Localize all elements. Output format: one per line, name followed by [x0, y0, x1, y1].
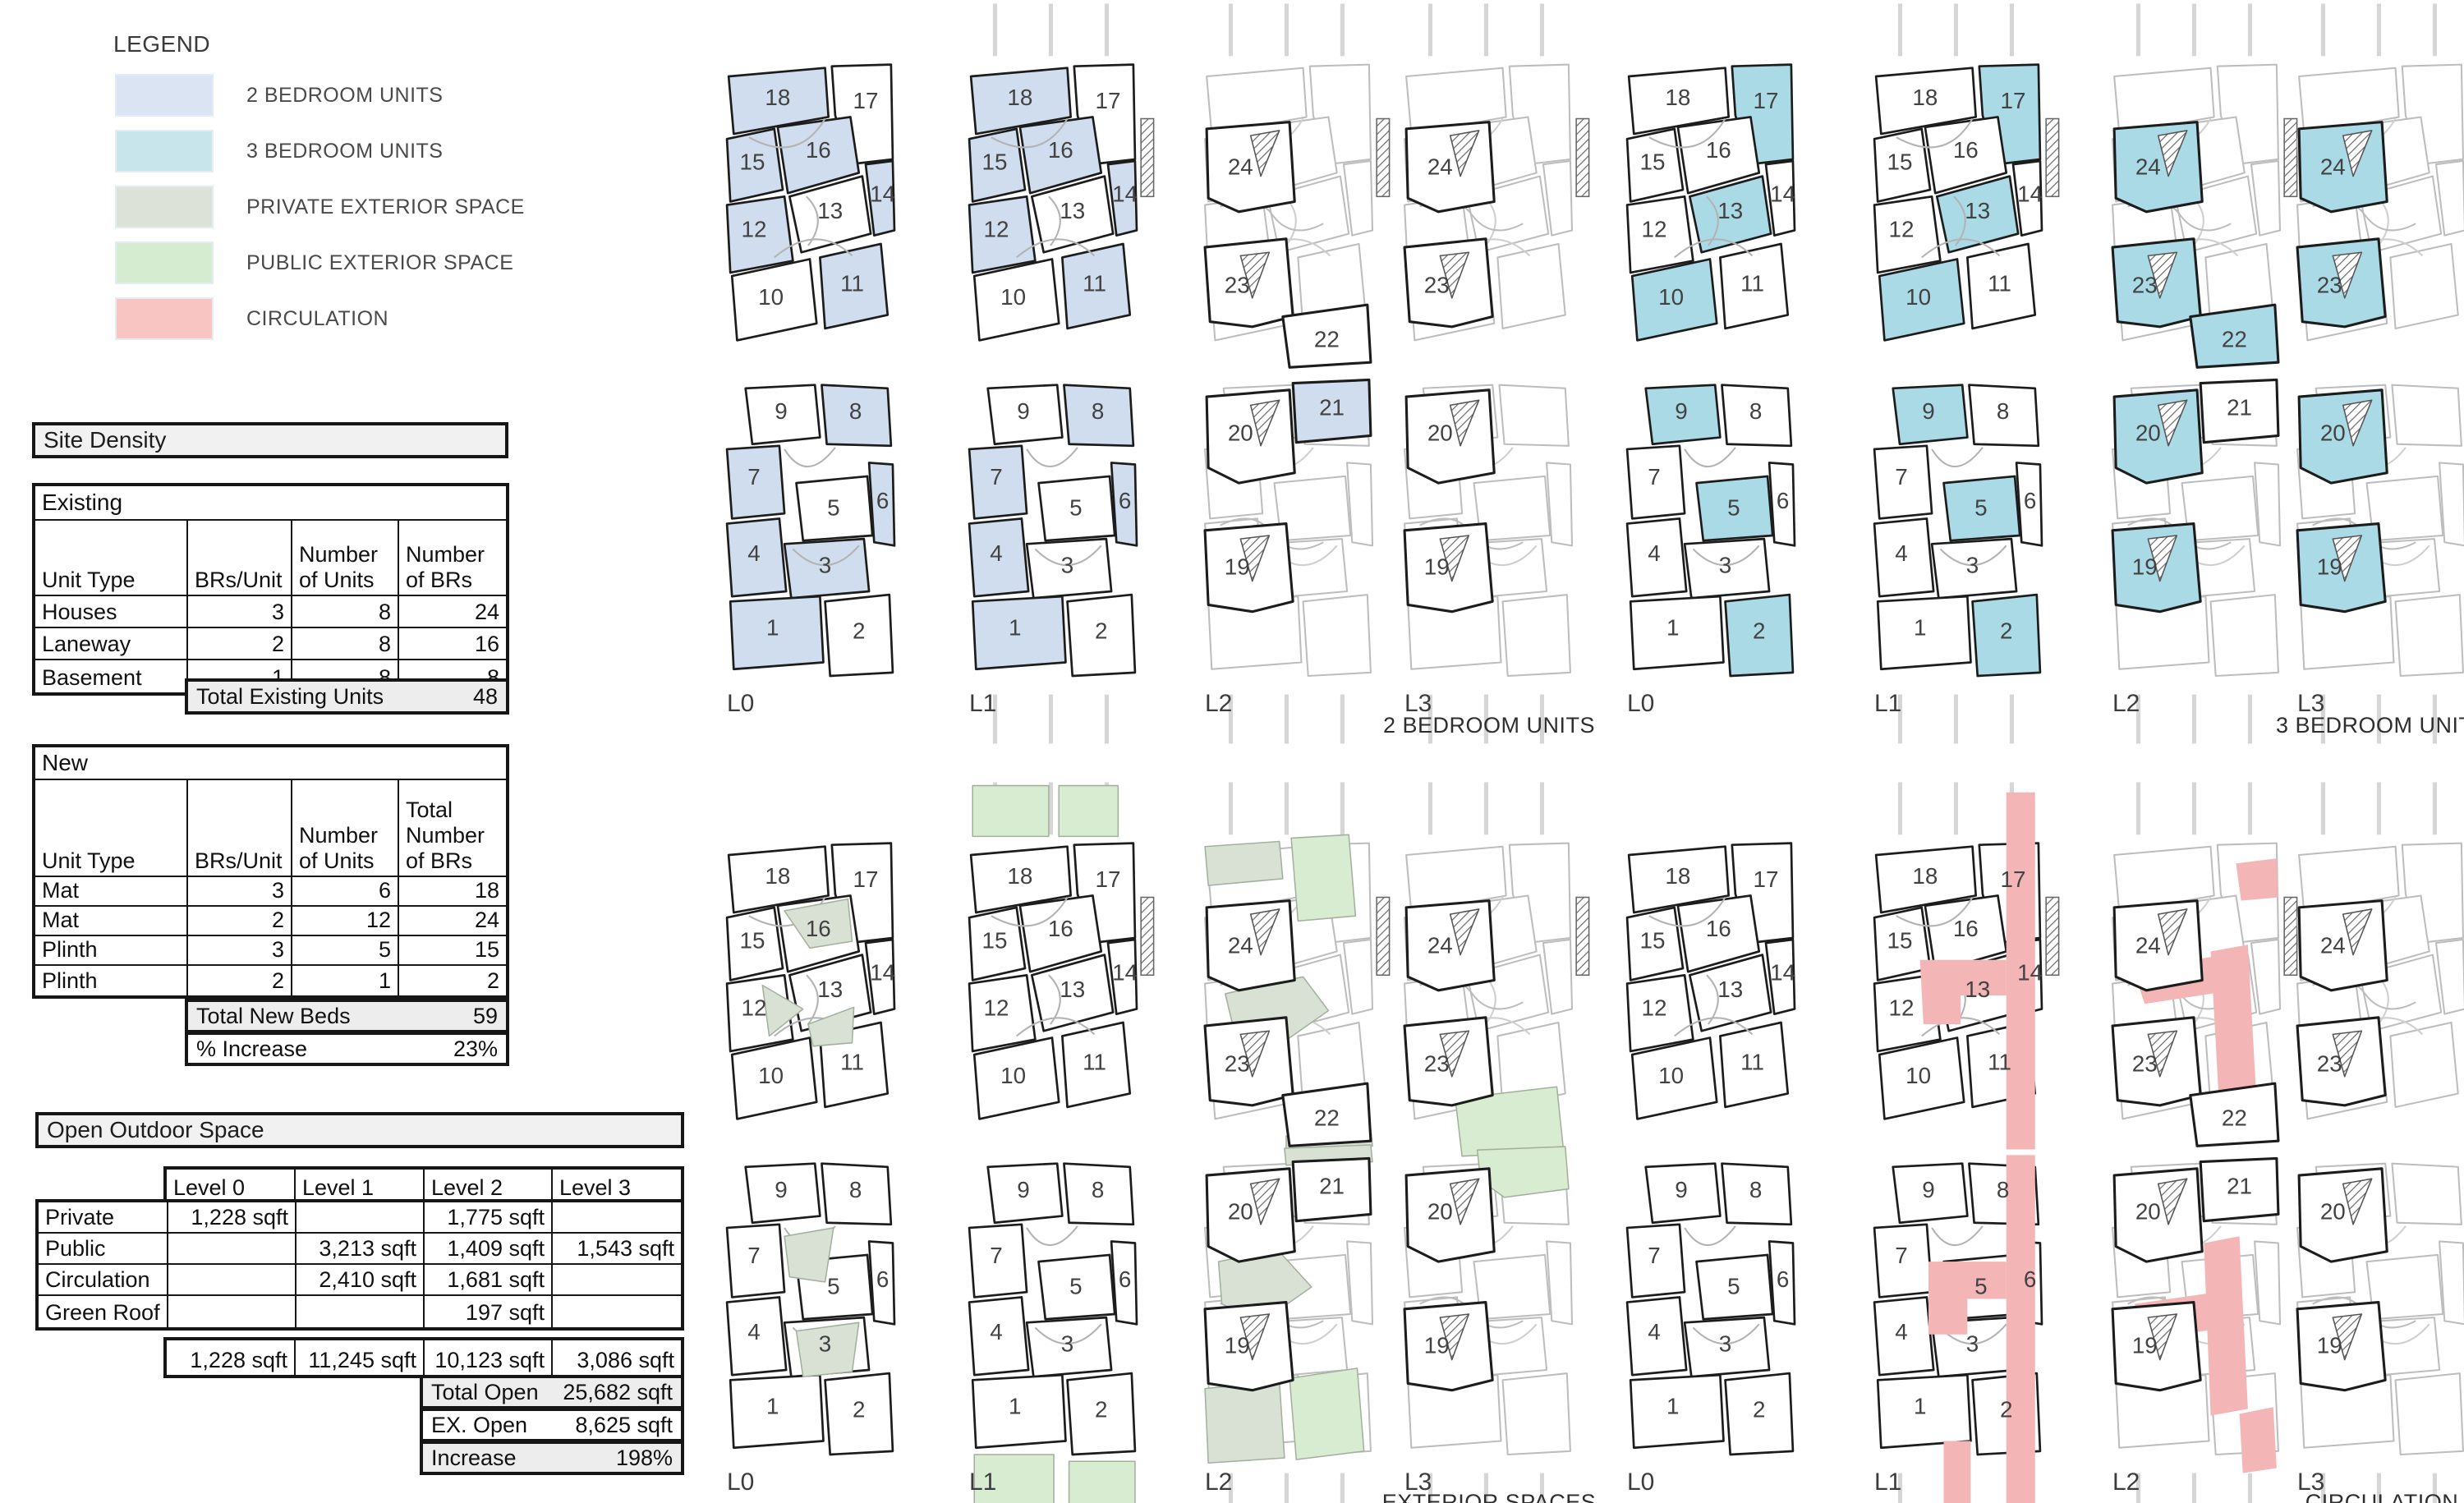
context-line	[1285, 782, 1289, 834]
new-col-header: Total Number of BRs	[399, 780, 506, 877]
room-number: 1	[1666, 1394, 1679, 1419]
new-cell: 12	[292, 907, 399, 936]
context-room	[1497, 244, 1565, 329]
context-line	[1898, 3, 1902, 56]
room-number: 9	[775, 1177, 787, 1202]
ex-open-label: EX. Open	[431, 1413, 527, 1438]
room-number: 9	[1922, 1177, 1934, 1202]
open-row-label: Public	[39, 1234, 168, 1265]
context-line	[1898, 782, 1902, 834]
context-line	[1340, 782, 1345, 834]
room-number: 12	[984, 217, 1009, 242]
plan-group-caption: CIRCULATION	[2250, 1490, 2464, 1503]
room-number: 20	[1427, 421, 1453, 446]
room-number: 20	[2320, 421, 2346, 446]
room-number: 6	[1777, 1266, 1789, 1292]
room-number: 11	[1988, 271, 2011, 296]
context-room	[1547, 1241, 1572, 1324]
room-number: 8	[1092, 1177, 1104, 1202]
room-number: 1	[1009, 615, 1021, 641]
open-cell: 197 sqft	[425, 1296, 553, 1327]
room-number: 3	[1966, 1331, 1979, 1356]
context-line	[1484, 782, 1488, 834]
context-line	[1954, 3, 1958, 56]
room-number: 10	[1658, 1063, 1684, 1088]
circ-exterior-patch	[2236, 858, 2278, 901]
room-number: 20	[1228, 1199, 1253, 1225]
context-line	[2377, 3, 2381, 56]
room-number: 15	[1887, 927, 1912, 953]
plan-upper-block: 181715161314121011	[1625, 64, 1795, 370]
room-number: 6	[1777, 488, 1789, 513]
plan-lower-block: 2019	[2296, 1161, 2464, 1467]
open-total-cell: 3,086 sqft	[553, 1340, 681, 1375]
new-cell: 3	[188, 877, 292, 907]
pub-exterior-patch	[1289, 1368, 1364, 1459]
room-number: 16	[1706, 916, 1731, 941]
room-number: 8	[1092, 398, 1104, 424]
legend-swatch-circulation	[115, 297, 214, 340]
open-total-cell: 1,228 sqft	[167, 1340, 296, 1375]
room-number: 6	[1119, 488, 1131, 513]
context-line	[1105, 3, 1109, 56]
context-line	[2192, 695, 2196, 744]
room-number: 11	[1083, 271, 1106, 296]
room-number: 8	[1749, 398, 1762, 424]
legend-swatch-private-exterior	[115, 186, 214, 228]
room-number: 18	[1665, 85, 1690, 110]
open-cell: 1,543 sqft	[553, 1234, 681, 1265]
increase-label: Increase	[431, 1446, 517, 1471]
open-cell: 1,409 sqft	[425, 1234, 553, 1265]
room-number: 5	[1727, 1273, 1740, 1298]
room-number: 3	[819, 552, 831, 577]
increase-value: 198%	[616, 1446, 673, 1471]
new-col-header: Unit Type	[35, 780, 188, 877]
level-label: L1	[969, 1469, 996, 1496]
plan-lower-block: 202119	[2111, 383, 2280, 688]
level-label: L2	[2112, 1469, 2140, 1496]
site-density-header: Site Density	[32, 422, 508, 458]
room-number: 23	[1225, 273, 1250, 298]
context-line	[1540, 3, 1544, 56]
room-number: 10	[1905, 284, 1931, 310]
room-number: 17	[2001, 88, 2026, 113]
room-number: 7	[1648, 464, 1660, 490]
interior-arc	[1027, 448, 1078, 467]
context-line	[2321, 782, 2325, 834]
room-number: 4	[1895, 1319, 1907, 1344]
room-number: 10	[758, 1063, 784, 1088]
room-number: 19	[2132, 554, 2158, 579]
plan-lower-block: 202119	[1203, 1161, 1372, 1467]
context-room	[1303, 595, 1371, 676]
room-number: 1	[1009, 1394, 1021, 1419]
context-room	[1347, 1241, 1372, 1324]
new-cell: 18	[399, 877, 506, 907]
ex-open-box: EX. Open 8,625 sqft	[420, 1408, 684, 1442]
room-number: 18	[765, 863, 790, 889]
room-number: 6	[2024, 1266, 2036, 1292]
room-number: 2	[1753, 618, 1765, 644]
level-col-header: Level 0	[167, 1170, 296, 1202]
existing-cell: 2	[188, 628, 292, 660]
circ-exterior-patch	[2007, 1155, 2035, 1503]
room-number: 1	[766, 1394, 779, 1419]
room-number: 5	[1727, 494, 1740, 520]
plan-upper-block: 181715161314121011	[1873, 64, 2042, 370]
plan-lower-block: 987564321	[1625, 383, 1795, 688]
context-room	[1503, 1373, 1570, 1455]
room-number: 15	[981, 149, 1007, 174]
room-number: 14	[2017, 181, 2043, 206]
room-number: 1	[1914, 1394, 1926, 1419]
room-number: 12	[1642, 217, 1667, 242]
room-number: 12	[742, 995, 767, 1021]
room-number: 16	[1048, 916, 1073, 941]
room-number: 13	[1060, 977, 1085, 1002]
open-cell: 1,228 sqft	[168, 1202, 297, 1234]
legend-item: PRIVATE EXTERIOR SPACE	[115, 184, 608, 230]
room-number: 18	[1007, 85, 1032, 110]
room-number: 7	[1648, 1243, 1660, 1268]
plan-upper-block: 2423	[2296, 64, 2464, 370]
room-number: 19	[1225, 554, 1250, 579]
plan-lower-block: 987564321	[968, 383, 1137, 688]
room-number: 11	[1740, 271, 1764, 296]
room-number: 4	[990, 1319, 1002, 1344]
room-number: 13	[1965, 977, 1990, 1002]
context-room	[2390, 1023, 2457, 1107]
room-number: 1	[766, 615, 779, 641]
room-number: 5	[1069, 1273, 1082, 1298]
pub-exterior-patch	[1059, 786, 1118, 837]
new-cell: Mat	[35, 907, 188, 936]
room-number: 22	[2222, 1105, 2247, 1131]
room-number: 15	[1887, 149, 1912, 174]
legend-item: 3 BEDROOM UNITS	[115, 128, 608, 174]
open-total-cell: 10,123 sqft	[425, 1340, 553, 1375]
plan-upper-block: 181715161314121011	[1625, 843, 1795, 1148]
plan-lower-block: 987564321	[725, 383, 894, 688]
context-room	[1547, 462, 1572, 545]
context-line	[1285, 3, 1289, 56]
stair-hatch	[2046, 119, 2058, 197]
open-cell	[297, 1202, 425, 1234]
room-number: 4	[990, 540, 1002, 566]
existing-cell: Basement	[35, 660, 188, 692]
room-number: 7	[1895, 1243, 1907, 1268]
context-room	[2396, 595, 2463, 676]
open-cell: 1,681 sqft	[425, 1265, 553, 1296]
open-cell: 1,775 sqft	[425, 1202, 553, 1234]
room-number: 14	[870, 181, 895, 206]
plan-upper-block: 181715161314121011	[725, 843, 894, 1148]
room-number: 20	[1228, 421, 1253, 446]
room-number: 3	[1061, 1331, 1073, 1356]
level-label: L0	[1627, 690, 1654, 718]
legend-item: 2 BEDROOM UNITS	[115, 72, 608, 118]
plan-upper-block: 242322	[1203, 843, 1372, 1148]
context-line	[2377, 782, 2381, 834]
room-number: 16	[1048, 137, 1073, 163]
context-room	[2255, 462, 2280, 545]
new-table: New Unit Type BRs/Unit Number of Units T…	[32, 744, 509, 999]
new-cell: 1	[292, 966, 399, 995]
plan-lower-block: 202119	[2111, 1161, 2280, 1467]
room-number: 5	[1974, 1273, 1987, 1298]
plan-upper-block: 181715161314121011	[725, 64, 894, 370]
stair-hatch	[1377, 119, 1389, 197]
context-line	[1340, 695, 1345, 744]
context-line	[2433, 3, 2437, 56]
context-line	[2192, 3, 2196, 56]
context-line	[2192, 782, 2196, 834]
room-number: 6	[876, 1266, 889, 1292]
level-label: L1	[1874, 690, 1901, 718]
existing-cell: 16	[399, 628, 506, 660]
room-number: 8	[1997, 1177, 2009, 1202]
stair-hatch	[1576, 119, 1588, 197]
interior-arc	[1932, 1226, 1983, 1245]
ex-open-value: 8,625 sqft	[575, 1413, 673, 1438]
level-label: L1	[969, 690, 996, 718]
new-total-beds-label: Total New Beds	[196, 1004, 351, 1029]
legend-label: PRIVATE EXTERIOR SPACE	[246, 195, 525, 219]
context-room	[1503, 595, 1570, 676]
room-number: 19	[2317, 554, 2342, 579]
context-line	[1285, 695, 1289, 744]
plan-upper-block: 181715161314121011	[968, 843, 1137, 1148]
room-number: 4	[747, 1319, 760, 1344]
new-col-header: BRs/Unit	[188, 780, 292, 877]
stair-hatch	[2046, 898, 2058, 976]
context-line	[1049, 695, 1053, 744]
room-number: 17	[1754, 88, 1779, 113]
context-line	[2248, 3, 2252, 56]
room-number: 13	[1965, 198, 1990, 223]
context-line	[1049, 3, 1053, 56]
room-number: 14	[1112, 181, 1138, 206]
context-line	[1428, 3, 1432, 56]
open-total-cell: 11,245 sqft	[296, 1340, 425, 1375]
room-number: 19	[1424, 554, 1450, 579]
pub-exterior-patch	[972, 786, 1049, 837]
context-line	[2136, 782, 2140, 834]
context-room	[2439, 462, 2464, 545]
room-number: 24	[1427, 154, 1453, 180]
open-cell	[168, 1296, 297, 1327]
room-number: 16	[1953, 916, 1979, 941]
room-number: 17	[853, 88, 879, 113]
room-number: 24	[2135, 154, 2161, 180]
room-number: 8	[1749, 1177, 1762, 1202]
room-number: 15	[739, 927, 765, 953]
plan-lower-block: 987564321	[968, 1161, 1137, 1467]
open-cell	[297, 1296, 425, 1327]
room-number: 24	[1228, 933, 1253, 958]
open-cell: 2,410 sqft	[297, 1265, 425, 1296]
new-cell: Plinth	[35, 966, 188, 995]
room-number: 18	[1007, 863, 1032, 889]
open-cell	[553, 1202, 681, 1234]
plan-upper-block: 181715161314121011	[968, 64, 1137, 370]
new-col-header: Number of Units	[292, 780, 399, 877]
room-number: 24	[2320, 933, 2346, 958]
priv-exterior-patch	[1205, 842, 1283, 886]
room-number: 4	[1648, 1319, 1660, 1344]
room-number: 19	[1225, 1332, 1250, 1358]
room-number: 14	[1770, 959, 1795, 985]
room-number: 2	[2000, 618, 2012, 644]
level-label: L0	[727, 1469, 754, 1496]
existing-col-header: Number of BRs	[399, 521, 506, 596]
room-number: 16	[806, 137, 831, 163]
room-number: 23	[2317, 1051, 2342, 1077]
new-cell: 5	[292, 936, 399, 966]
room-number: 22	[1314, 1105, 1340, 1131]
context-room	[2439, 1241, 2464, 1324]
new-total-beds-value: 59	[473, 1004, 498, 1029]
new-cell: 2	[399, 966, 506, 995]
room-number: 22	[1314, 327, 1340, 352]
level-label: L0	[1627, 1469, 1654, 1496]
room-number: 20	[2135, 421, 2161, 446]
new-cell: Mat	[35, 877, 188, 907]
room-number: 24	[2320, 154, 2346, 180]
sheet-canvas: LEGEND 2 BEDROOM UNITS 3 BEDROOM UNITS P…	[0, 0, 2464, 1503]
plan-lower-block: 2019	[1403, 1161, 1572, 1467]
plan-lower-block: 2019	[1403, 383, 1572, 688]
plan-lower-block: 987564321	[1625, 1161, 1795, 1467]
context-line	[2010, 3, 2014, 56]
new-cell: 24	[399, 907, 506, 936]
context-line	[1105, 695, 1109, 744]
plan-lower-block: 2019	[2296, 383, 2464, 688]
room-number: 3	[1719, 1331, 1731, 1356]
room-number: 23	[1424, 273, 1450, 298]
context-line	[2010, 695, 2014, 744]
room-number: 5	[827, 1273, 839, 1298]
room-number: 24	[1427, 933, 1453, 958]
room-number: 21	[1319, 1174, 1345, 1199]
context-line	[2248, 782, 2252, 834]
total-open-box: Total Open 25,682 sqft	[420, 1375, 684, 1409]
room-number: 15	[1639, 927, 1665, 953]
room-number: 9	[1922, 398, 1934, 424]
room-number: 12	[742, 217, 767, 242]
legend-swatch-public-exterior	[115, 241, 214, 284]
plan-upper-block: 2423	[1403, 64, 1572, 370]
room-number: 14	[870, 959, 895, 985]
total-open-label: Total Open	[431, 1380, 539, 1405]
plan-lower-block: 987564321	[1873, 383, 2042, 688]
room-number: 16	[806, 916, 831, 941]
level-label: L2	[1205, 1469, 1232, 1496]
plan-lower-block: 987564321	[725, 1161, 894, 1467]
room-number: 2	[2000, 1397, 2012, 1423]
context-line	[1229, 3, 1233, 56]
context-line	[1340, 3, 1345, 56]
legend-item: CIRCULATION	[115, 296, 608, 342]
context-line	[2433, 782, 2437, 834]
room-number: 2	[1095, 1397, 1107, 1423]
level-label: L0	[727, 690, 754, 718]
pub-exterior-patch	[1291, 834, 1355, 921]
room-number: 8	[1997, 398, 2009, 424]
room-number: 19	[2317, 1332, 2342, 1358]
room-number: 13	[817, 977, 843, 1002]
pub-exterior-patch	[1069, 1461, 1135, 1503]
total-open-value: 25,682 sqft	[563, 1380, 673, 1405]
circ-exterior-patch	[1944, 1441, 1971, 1503]
open-row-label: Green Roof	[39, 1296, 168, 1327]
room-number: 13	[1717, 977, 1743, 1002]
context-room	[2211, 595, 2278, 676]
open-cell	[168, 1265, 297, 1296]
context-line	[1340, 1473, 1345, 1503]
open-cell	[553, 1265, 681, 1296]
room-number: 20	[2135, 1199, 2161, 1225]
room-number: 24	[1228, 154, 1253, 180]
room-number: 12	[1642, 995, 1667, 1021]
new-increase-label: % Increase	[196, 1036, 307, 1062]
room-number: 14	[2017, 959, 2043, 985]
room-number: 2	[853, 1397, 865, 1423]
room-number: 14	[1112, 959, 1138, 985]
level-col-header: Level 2	[425, 1170, 553, 1202]
room-number: 14	[1770, 181, 1795, 206]
room-number: 17	[2001, 866, 2026, 892]
plan-group-caption: 2 BEDROOM UNITS	[1358, 713, 1620, 738]
context-line	[2321, 3, 2325, 56]
room-number: 16	[1953, 137, 1979, 163]
room-number: 3	[1061, 552, 1073, 577]
new-increase-value: 23%	[453, 1036, 498, 1062]
room-number: 9	[1017, 398, 1029, 424]
plan-upper-block: 2423	[2296, 843, 2464, 1148]
open-cell	[553, 1296, 681, 1327]
room-number: 1	[1666, 615, 1679, 641]
stair-hatch	[1141, 119, 1153, 197]
existing-cell: Laneway	[35, 628, 188, 660]
plan-group-caption: EXTERIOR SPACES	[1358, 1490, 1620, 1503]
room-number: 4	[747, 540, 760, 566]
legend-swatch-3br	[115, 130, 214, 172]
existing-col-header: Unit Type	[35, 521, 188, 596]
stair-hatch	[1576, 898, 1588, 976]
plan-lower-block: 987564321	[1873, 1161, 2042, 1467]
room-number: 18	[1912, 85, 1938, 110]
legend-item: PUBLIC EXTERIOR SPACE	[115, 240, 608, 286]
new-total-beds-box: Total New Beds 59	[185, 999, 509, 1033]
existing-cell: 8	[292, 596, 399, 628]
room-number: 18	[1912, 863, 1938, 889]
room-number: 15	[981, 927, 1007, 953]
level-label: L2	[1205, 690, 1232, 718]
room-number: 20	[1427, 1199, 1453, 1225]
context-line	[1954, 695, 1958, 744]
room-number: 13	[1060, 198, 1085, 223]
new-table-title: New	[35, 747, 506, 780]
room-number: 16	[1706, 137, 1731, 163]
room-number: 18	[765, 85, 790, 110]
context-line	[1428, 782, 1432, 834]
new-increase-box: % Increase 23%	[185, 1032, 509, 1066]
room-number: 9	[1017, 1177, 1029, 1202]
context-line	[1229, 782, 1233, 834]
legend-title: LEGEND	[113, 31, 210, 57]
